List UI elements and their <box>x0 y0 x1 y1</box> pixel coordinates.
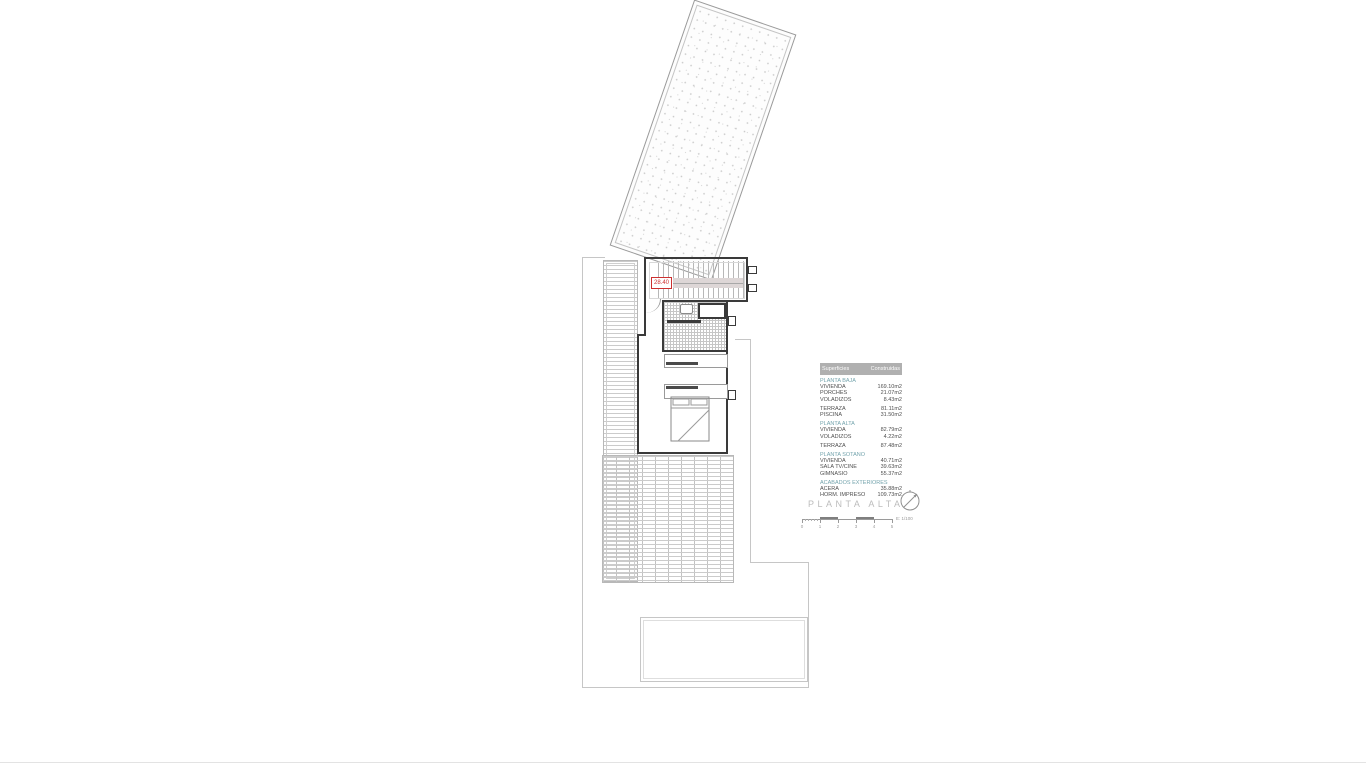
area-row-value: 4.22m2 <box>884 434 902 440</box>
site-parcel-tilted <box>610 0 797 280</box>
site-boundary-left <box>582 257 583 688</box>
area-row: HORM. IMPRESO109.73m2 <box>820 492 902 498</box>
areas-table: Superficies Construidas PLANTA BAJAVIVIE… <box>820 363 902 498</box>
door-swing-arc <box>646 299 661 313</box>
area-row: GIMNASIO55.37m2 <box>820 471 902 477</box>
wall-stub-upper-right <box>728 316 736 326</box>
areas-table-header: Superficies Construidas <box>820 363 902 375</box>
wall-bath-right <box>726 302 728 352</box>
plan-title: PLANTA ALTA <box>808 499 908 509</box>
wall-stairwell-left <box>644 257 646 302</box>
scale-ratio-text: E: 1/100 <box>896 516 913 521</box>
wall-stairwell-top <box>644 257 748 259</box>
site-boundary-step-v <box>750 339 751 563</box>
area-row-value: 31.50m2 <box>881 412 902 418</box>
scale-tick-number: 0 <box>798 524 806 529</box>
scale-tick <box>856 519 857 523</box>
scale-tick <box>892 519 893 523</box>
scale-tick <box>820 519 821 523</box>
area-row-label: GIMNASIO <box>820 471 848 477</box>
scale-fill-segment-1 <box>820 517 838 519</box>
areas-table-body: PLANTA BAJAVIVIENDA169.10m2PORCHES21.07m… <box>820 378 902 498</box>
area-row-label: PISCINA <box>820 412 842 418</box>
wall-hall-left-lower <box>637 334 639 454</box>
scale-fill-segment-2 <box>856 517 874 519</box>
area-row: PISCINA31.50m2 <box>820 412 902 418</box>
wall-pier-upper <box>748 266 757 274</box>
area-row: TERRAZA87.48m2 <box>820 443 902 449</box>
scale-tick <box>874 519 875 523</box>
scale-baseline <box>802 519 892 520</box>
scale-subtick <box>808 519 809 521</box>
scale-bar: E: 1/100 012345 <box>800 513 915 529</box>
scale-tick-number: 4 <box>870 524 878 529</box>
wall-bath-bottom <box>662 350 728 352</box>
closet-box <box>698 303 726 319</box>
wall-pier-lower <box>748 284 757 292</box>
north-arrow-icon <box>898 488 922 512</box>
scale-tick <box>838 519 839 523</box>
site-boundary-top-left <box>582 257 605 258</box>
wardrobe-band-upper <box>664 354 728 368</box>
pool-inner-line <box>643 620 805 679</box>
area-row-value: 87.48m2 <box>881 443 902 449</box>
vanity-counter <box>667 320 701 323</box>
site-boundary-connector <box>735 339 751 340</box>
gravel-stipple-texture <box>615 5 792 276</box>
toilet-fixture <box>680 304 693 314</box>
wall-stub-lower-right <box>728 390 736 400</box>
area-row-label: TERRAZA <box>820 443 846 449</box>
scale-tick-number: 5 <box>888 524 896 529</box>
area-row-label: HORM. IMPRESO <box>820 492 865 498</box>
scale-tick-number: 3 <box>852 524 860 529</box>
scale-subtick <box>805 519 806 521</box>
scale-tick-number: 2 <box>834 524 842 529</box>
wardrobe-bar-lower <box>666 386 698 389</box>
wall-stairwell-right <box>746 257 748 302</box>
site-boundary-step-h <box>750 562 809 563</box>
scale-tick <box>802 519 803 523</box>
bed-furniture <box>670 396 712 444</box>
stair-rail-line <box>673 283 743 284</box>
area-row-label: VOLADIZOS <box>820 434 851 440</box>
site-boundary-bottom <box>582 687 809 688</box>
terrace-hatch-main <box>602 455 734 583</box>
scale-subtick <box>814 519 815 521</box>
wardrobe-bar-upper <box>666 362 698 365</box>
site-boundary-right <box>808 562 809 688</box>
wall-building-bottom <box>637 452 728 454</box>
header-col-superficies: Superficies <box>822 363 849 375</box>
scale-tick-number: 1 <box>816 524 824 529</box>
pool-outline <box>640 617 808 682</box>
area-row-label: VOLADIZOS <box>820 397 851 403</box>
scale-subtick <box>817 519 818 521</box>
area-row-value: 55.37m2 <box>881 471 902 477</box>
page-bottom-rule <box>0 762 1366 763</box>
area-row-value: 8.43m2 <box>884 397 902 403</box>
scale-subtick <box>811 519 812 521</box>
level-elevation-label: 28.40 <box>651 277 672 289</box>
header-col-construidas: Construidas <box>871 363 900 375</box>
